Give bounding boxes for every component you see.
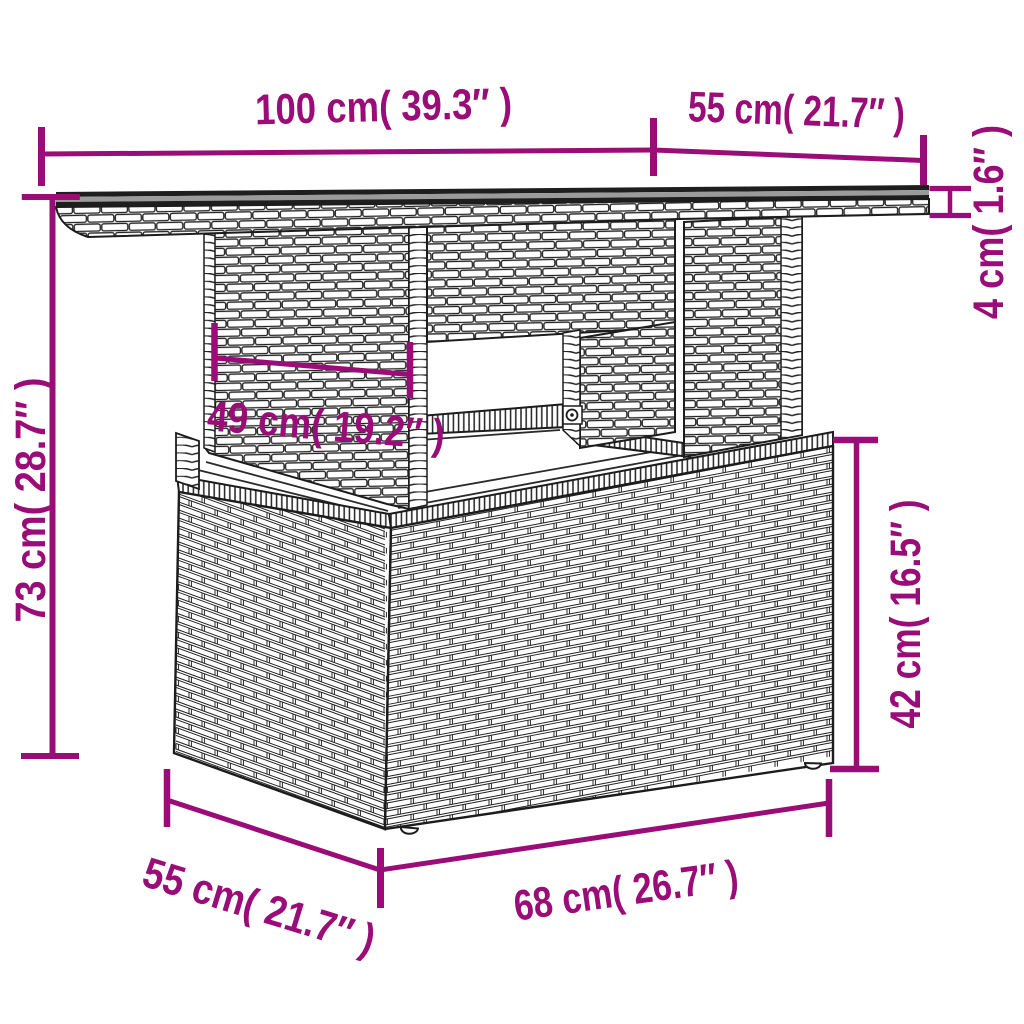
svg-text:42 cm( 16.5″ ): 42 cm( 16.5″ ) — [882, 500, 930, 729]
svg-text:73 cm( 28.7″ ): 73 cm( 28.7″ ) — [7, 378, 55, 623]
svg-text:4 cm( 1.6″ ): 4 cm( 1.6″ ) — [965, 125, 1013, 319]
svg-text:55 cm( 21.7″ ): 55 cm( 21.7″ ) — [687, 83, 906, 139]
svg-text:100 cm( 39.3″ ): 100 cm( 39.3″ ) — [255, 80, 513, 135]
